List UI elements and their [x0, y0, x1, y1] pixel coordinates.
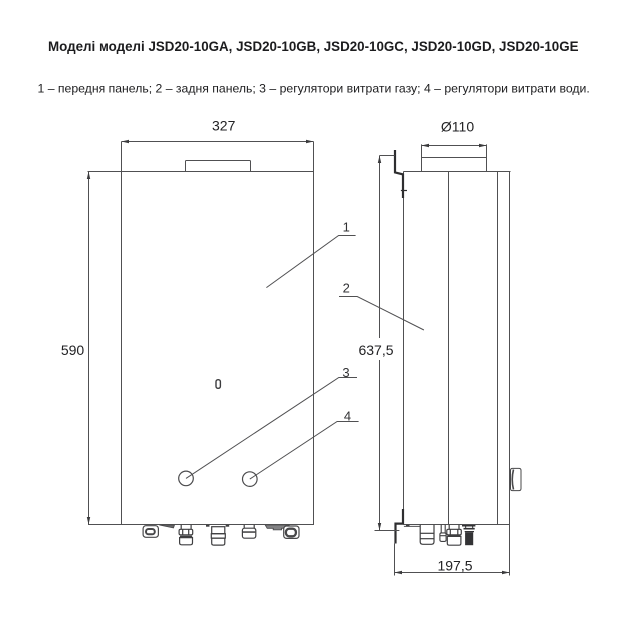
- svg-text:4: 4: [344, 408, 351, 423]
- svg-text:Моделі моделі JSD20-10GA, JSD2: Моделі моделі JSD20-10GA, JSD20-10GB, JS…: [48, 38, 579, 54]
- svg-text:2: 2: [343, 281, 350, 296]
- svg-text:197,5: 197,5: [437, 557, 472, 573]
- svg-text:1: 1: [343, 220, 350, 235]
- svg-text:590: 590: [61, 342, 85, 358]
- svg-text:Ø110: Ø110: [441, 119, 474, 135]
- svg-text:327: 327: [212, 118, 236, 134]
- svg-text:3: 3: [342, 365, 349, 380]
- svg-text:1 – передня панель; 2 – задня: 1 – передня панель; 2 – задня панель; 3 …: [38, 82, 590, 96]
- svg-text:637,5: 637,5: [358, 342, 393, 358]
